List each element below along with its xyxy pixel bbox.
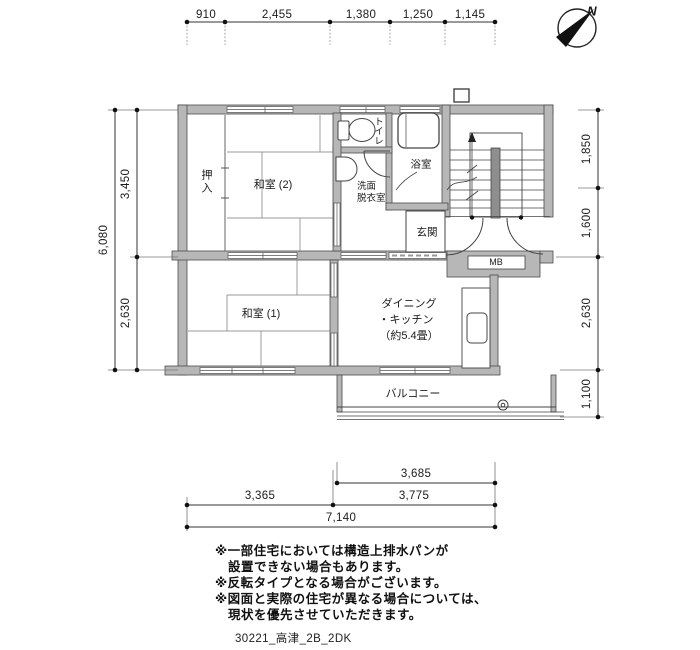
dim-top-2: 2,455 <box>262 9 292 21</box>
wall-wash-bath <box>386 113 392 210</box>
room-label-balcony: バルコニー <box>386 385 441 401</box>
stair-arrow-icon <box>468 132 476 142</box>
kitchen-sink-icon <box>467 313 487 343</box>
balcony-rails <box>337 407 564 420</box>
room-label-washitsu2: 和室 (2) <box>254 176 293 192</box>
room-label-washroom-2: 脱衣室 <box>357 190 386 204</box>
room-label-toilet: トイレ <box>370 117 384 146</box>
wall-bath-bottom <box>386 203 448 210</box>
bathtub-icon <box>398 113 439 148</box>
stairs-group <box>446 132 550 220</box>
note-line-5: 現状を優先させていただきます。 <box>215 604 422 623</box>
dim-top-1: 910 <box>196 9 216 21</box>
vent-box <box>454 89 469 102</box>
toilet-tank-icon <box>338 121 349 140</box>
floor-plan-page: 910 2,455 1,380 1,250 1,145 6,080 3,450 … <box>0 0 700 650</box>
dim-bottom-left: 3,365 <box>245 490 275 502</box>
room-label-bath: 浴室 <box>411 157 432 172</box>
wall-mb-bump-ext <box>540 251 553 263</box>
wall-balcony-right <box>551 375 556 412</box>
room-label-dk-2: ・キッチン <box>379 311 434 327</box>
dim-right-4: 1,100 <box>581 379 593 409</box>
dim-left-1: 3,450 <box>120 169 132 199</box>
stair-rail <box>491 148 500 218</box>
wall-bath-stair <box>442 105 450 217</box>
wall-dining-right <box>490 275 498 368</box>
wall-left <box>178 105 187 375</box>
room-label-dk-3: （約5.4畳） <box>379 327 438 343</box>
dim-left-2: 2,630 <box>120 298 132 328</box>
room-label-closet: 押入 <box>198 169 214 195</box>
dim-top-4: 1,250 <box>403 9 433 21</box>
washbasin-icon <box>336 157 357 181</box>
room-label-entrance: 玄関 <box>417 225 438 240</box>
entrance-door-right <box>507 218 543 254</box>
dim-bottom-upper: 3,685 <box>401 468 431 480</box>
wall-balcony-left <box>337 375 342 412</box>
dim-bottom-total: 7,140 <box>326 512 356 524</box>
dim-left-total: 6,080 <box>98 225 110 255</box>
dim-right-3: 2,630 <box>581 298 593 328</box>
tatami-group <box>188 115 333 366</box>
wall-stair-right <box>544 105 553 217</box>
room-label-mb: MB <box>489 257 503 267</box>
room-label-washitsu1: 和室 (1) <box>242 305 281 321</box>
dim-top-3: 1,380 <box>346 9 376 21</box>
closet-divider <box>221 115 229 251</box>
dim-bottom-right: 3,775 <box>399 490 429 502</box>
room-label-dk-1: ダイニング <box>382 295 437 311</box>
compass-north-label: N <box>587 4 596 19</box>
bath-label-leader <box>396 172 417 190</box>
drawing-id-label: 30221_高津_2B_2DK <box>235 630 352 646</box>
dim-right-2: 1,600 <box>581 208 593 238</box>
wall-toilet-wash <box>333 147 392 153</box>
entrance-door-left <box>446 218 483 255</box>
dim-top-5: 1,145 <box>455 9 485 21</box>
stair-break-line <box>447 177 477 190</box>
dim-right-1: 1,850 <box>581 134 593 164</box>
